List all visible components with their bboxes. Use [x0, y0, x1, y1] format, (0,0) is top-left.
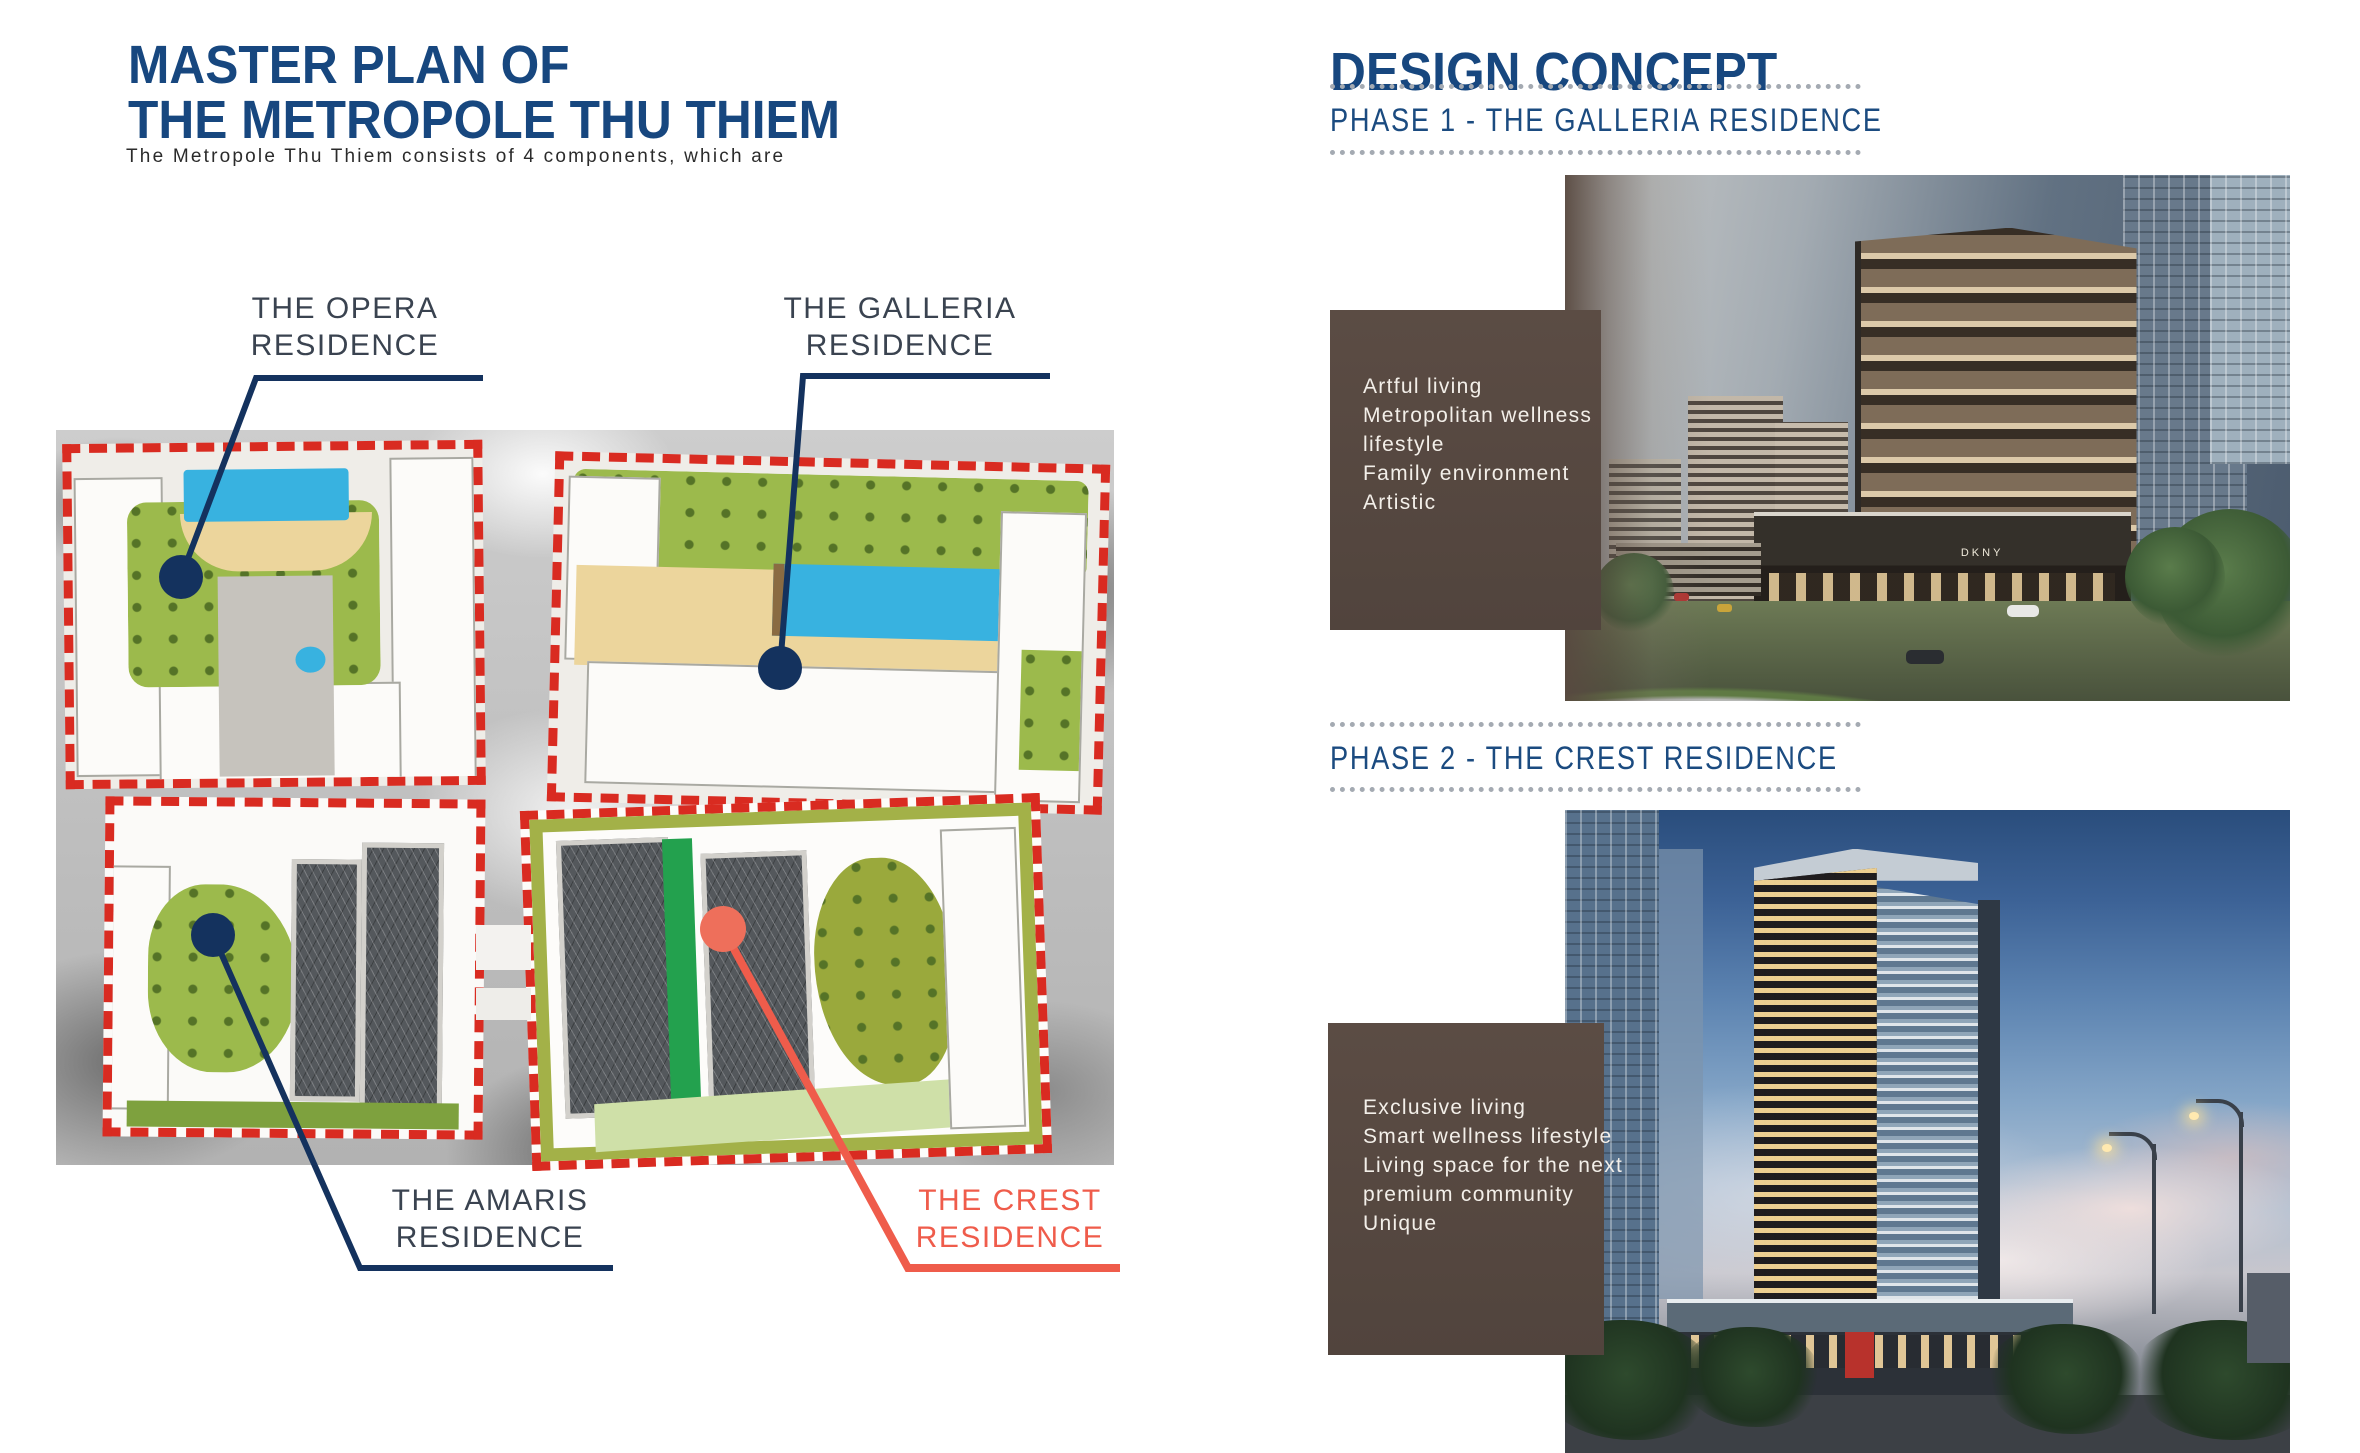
list-line: lifestyle [1363, 430, 1601, 459]
galleria-garden-east [1019, 650, 1082, 771]
phase2-tower-fin [1978, 900, 2000, 1305]
list-line: RESIDENCE [895, 1219, 1125, 1256]
label-galleria-residence: THE GALLERIARESIDENCE [760, 290, 1040, 364]
phase2-lamp-pole-2 [2239, 1112, 2243, 1312]
phase1-left-haze [1565, 175, 2290, 701]
phase2-far-building [2247, 1273, 2291, 1363]
master-plan-subtitle: The Metropole Thu Thiem consists of 4 co… [126, 146, 785, 168]
phase2-lamp-light-2 [2189, 1112, 2199, 1120]
phase1-heading: PHASE 1 - THE GALLERIA RESIDENCE [1330, 102, 1883, 139]
master-plan-map [56, 430, 1114, 1165]
amaris-park [147, 884, 299, 1073]
phase2-lamp-light-1 [2102, 1144, 2112, 1152]
crest-tower-roof-2 [700, 850, 815, 1106]
phase1-feature-box: Artful livingMetropolitan wellnesslifest… [1330, 310, 1601, 630]
master-plan-title-line2: THE METROPOLE THU THIEM [128, 93, 840, 148]
phase1-rule-bottom [1330, 150, 1861, 155]
list-line: Unique [1363, 1209, 1604, 1238]
design-concept-title: DESIGN CONCEPT [1330, 45, 1777, 100]
phase2-rule-top [1330, 722, 1861, 727]
list-line: RESIDENCE [760, 327, 1040, 364]
list-line: RESIDENCE [225, 327, 465, 364]
list-line: Metropolitan wellness [1363, 401, 1601, 430]
map-connector-bridge-1 [476, 925, 531, 970]
list-line: Smart wellness lifestyle [1363, 1122, 1604, 1151]
list-line: Living space for the next [1363, 1151, 1604, 1180]
amaris-tower-roof-2 [360, 843, 444, 1116]
map-block-opera [62, 440, 486, 789]
list-line: THE CREST [895, 1182, 1125, 1219]
galleria-pool [772, 564, 1028, 642]
crest-buildings-east [940, 827, 1026, 1129]
list-line: RESIDENCE [350, 1219, 630, 1256]
list-line: Family environment [1363, 459, 1601, 488]
label-amaris-residence: THE AMARISRESIDENCE [350, 1182, 630, 1256]
phase2-feature-box: Exclusive livingSmart wellness lifestyle… [1328, 1023, 1604, 1355]
label-opera-residence: THE OPERARESIDENCE [225, 290, 465, 364]
list-line: Exclusive living [1363, 1093, 1604, 1122]
phase2-tower-balcony-facade [1877, 887, 1979, 1311]
opera-plaza [218, 575, 335, 776]
opera-pool [183, 468, 349, 522]
label-crest-residence: THE CRESTRESIDENCE [895, 1182, 1125, 1256]
map-block-crest [520, 793, 1052, 1171]
master-plan-title-line1: MASTER PLAN OF [128, 38, 840, 93]
phase2-rule-bottom [1330, 787, 1861, 792]
amaris-garden-south [127, 1101, 459, 1130]
map-connector-bridge-2 [476, 988, 531, 1020]
phase2-red-banner [1845, 1332, 1873, 1378]
amaris-tower-roof-1 [290, 859, 362, 1102]
phase2-image [1565, 810, 2290, 1453]
opera-buildings-east [389, 457, 476, 782]
list-line: THE AMARIS [350, 1182, 630, 1219]
list-line: premium community [1363, 1180, 1604, 1209]
list-line: THE GALLERIA [760, 290, 1040, 327]
phase2-left-tower-2 [1659, 849, 1703, 1299]
phase2-tower-lit-facade [1754, 868, 1877, 1305]
list-line: Artful living [1363, 372, 1601, 401]
list-line: Artistic [1363, 488, 1601, 517]
phase2-heading: PHASE 2 - THE CREST RESIDENCE [1330, 740, 1838, 777]
phase2-lamp-pole-1 [2152, 1144, 2156, 1314]
phase1-image: DKNY [1565, 175, 2290, 701]
map-block-amaris [103, 796, 486, 1139]
brochure-page: MASTER PLAN OF THE METROPOLE THU THIEM T… [0, 0, 2360, 1453]
master-plan-title: MASTER PLAN OF THE METROPOLE THU THIEM [128, 38, 840, 148]
phase1-rule-top [1330, 84, 1861, 89]
map-block-galleria [547, 451, 1110, 814]
crest-tower-roof-1 [556, 837, 678, 1119]
list-line: THE OPERA [225, 290, 465, 327]
